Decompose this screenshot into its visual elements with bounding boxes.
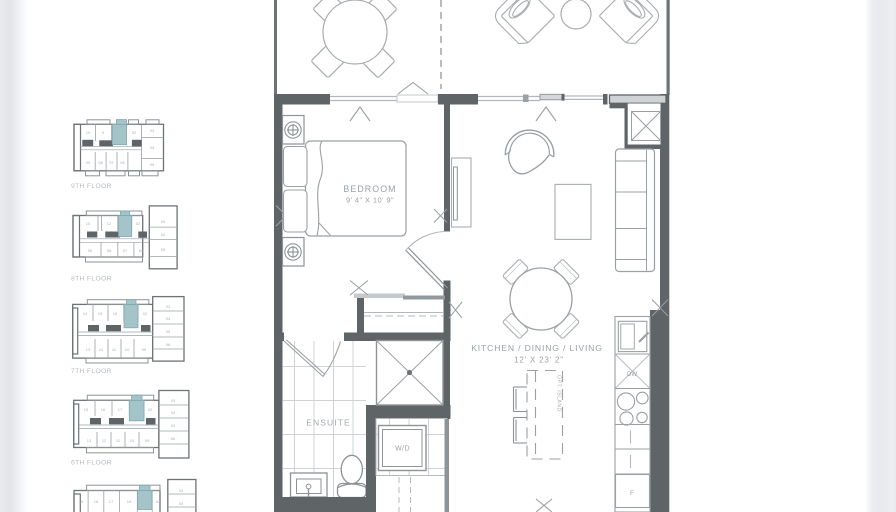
svg-text:08: 08 bbox=[98, 160, 103, 165]
svg-text:10: 10 bbox=[86, 130, 91, 135]
svg-text:03: 03 bbox=[150, 128, 155, 133]
svg-text:09: 09 bbox=[86, 160, 91, 165]
svg-text:04: 04 bbox=[179, 501, 184, 506]
svg-text:10: 10 bbox=[86, 221, 91, 226]
svg-text:17: 17 bbox=[118, 407, 123, 412]
svg-text:02: 02 bbox=[143, 311, 148, 316]
svg-text:14: 14 bbox=[83, 311, 88, 316]
svg-text:12: 12 bbox=[102, 438, 107, 443]
svg-text:13: 13 bbox=[86, 347, 91, 352]
svg-text:12: 12 bbox=[99, 347, 104, 352]
svg-text:04: 04 bbox=[161, 232, 166, 237]
svg-text:05: 05 bbox=[150, 162, 155, 167]
svg-text:F: F bbox=[630, 490, 634, 497]
svg-text:03: 03 bbox=[179, 488, 184, 493]
svg-text:OPT. ISLAND: OPT. ISLAND bbox=[556, 375, 562, 412]
svg-text:12' X 23' 2": 12' X 23' 2" bbox=[514, 356, 564, 365]
svg-text:10: 10 bbox=[130, 438, 135, 443]
svg-text:9TH FLOOR: 9TH FLOOR bbox=[71, 183, 112, 190]
svg-text:W/D: W/D bbox=[395, 446, 410, 453]
svg-text:7TH FLOOR: 7TH FLOOR bbox=[71, 368, 112, 375]
svg-text:15: 15 bbox=[84, 407, 89, 412]
svg-text:13: 13 bbox=[87, 438, 92, 443]
svg-text:06: 06 bbox=[166, 342, 171, 347]
svg-text:02: 02 bbox=[156, 499, 161, 504]
svg-text:ENSUITE: ENSUITE bbox=[306, 418, 351, 428]
svg-text:09: 09 bbox=[142, 347, 147, 352]
svg-text:10: 10 bbox=[125, 347, 130, 352]
svg-text:04: 04 bbox=[171, 410, 176, 415]
svg-text:9' 4" X 10' 9": 9' 4" X 10' 9" bbox=[346, 196, 394, 205]
svg-text:15: 15 bbox=[98, 311, 103, 316]
svg-text:02: 02 bbox=[148, 407, 153, 412]
svg-text:15: 15 bbox=[79, 499, 84, 504]
svg-text:03: 03 bbox=[171, 398, 176, 403]
svg-text:05: 05 bbox=[171, 423, 176, 428]
svg-text:02: 02 bbox=[132, 130, 137, 135]
svg-text:18: 18 bbox=[127, 499, 132, 504]
svg-text:BEDROOM: BEDROOM bbox=[343, 184, 396, 194]
svg-text:07: 07 bbox=[109, 160, 114, 165]
svg-text:05: 05 bbox=[166, 329, 171, 334]
svg-text:06: 06 bbox=[171, 436, 176, 441]
svg-text:09: 09 bbox=[145, 438, 150, 443]
svg-text:06: 06 bbox=[139, 248, 144, 253]
svg-text:16: 16 bbox=[94, 499, 99, 504]
svg-text:05: 05 bbox=[161, 247, 166, 252]
svg-text:04: 04 bbox=[166, 316, 171, 321]
svg-text:07: 07 bbox=[123, 248, 128, 253]
svg-text:08: 08 bbox=[107, 248, 112, 253]
svg-text:04: 04 bbox=[150, 145, 155, 150]
svg-text:03: 03 bbox=[166, 304, 171, 309]
svg-text:17: 17 bbox=[109, 499, 114, 504]
svg-text:16: 16 bbox=[101, 407, 106, 412]
svg-text:06: 06 bbox=[120, 160, 125, 165]
svg-text:02: 02 bbox=[136, 221, 141, 226]
svg-text:6TH FLOOR: 6TH FLOOR bbox=[71, 460, 112, 467]
svg-text:03: 03 bbox=[161, 219, 166, 224]
svg-text:KITCHEN / DINING / LIVING: KITCHEN / DINING / LIVING bbox=[471, 343, 603, 353]
svg-text:09: 09 bbox=[88, 248, 93, 253]
svg-text:8TH FLOOR: 8TH FLOOR bbox=[71, 276, 112, 283]
svg-text:12: 12 bbox=[107, 221, 112, 226]
svg-text:16: 16 bbox=[113, 311, 118, 316]
svg-text:DW: DW bbox=[627, 372, 637, 378]
